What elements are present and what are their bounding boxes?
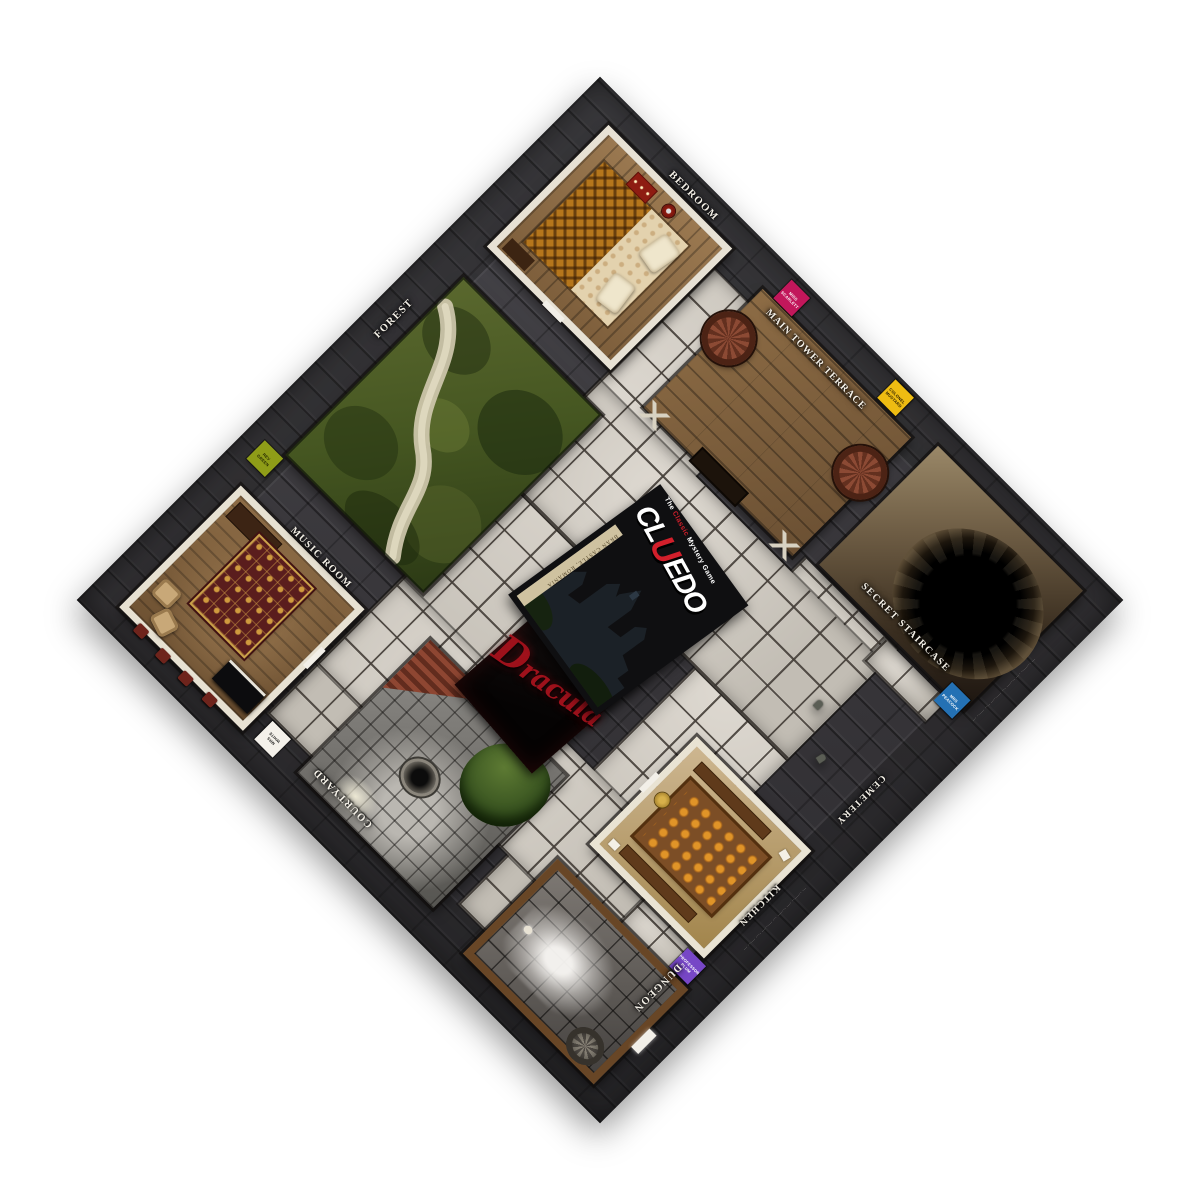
paper-sheet: [607, 839, 620, 852]
well: [397, 755, 442, 800]
cluedo-board: The Classic Mystery Game CLUEDO BRAN CAS…: [77, 77, 1124, 1124]
gravestone: [816, 753, 827, 764]
patterned-rug: [192, 536, 311, 655]
piano: [212, 660, 266, 714]
board-photo-stage: The Classic Mystery Game CLUEDO BRAN CAS…: [0, 0, 1200, 1200]
paper-sheet: [778, 849, 790, 862]
armchair: [149, 607, 179, 638]
armchair: [150, 577, 183, 610]
wall-clock: [660, 202, 678, 220]
gravestone: [813, 699, 824, 710]
